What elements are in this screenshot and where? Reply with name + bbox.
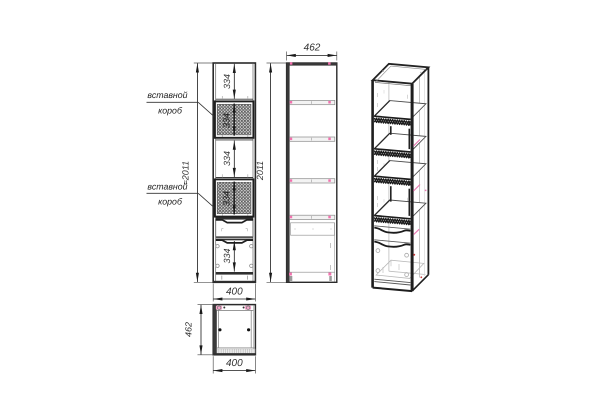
svg-text:400: 400 (226, 358, 243, 369)
svg-text:334: 334 (222, 151, 232, 166)
svg-text:462: 462 (304, 43, 321, 54)
svg-text:2011: 2011 (255, 161, 265, 181)
svg-text:400: 400 (226, 287, 243, 298)
svg-text:короб: короб (158, 106, 183, 116)
svg-text:462: 462 (184, 322, 194, 337)
svg-text:короб: короб (158, 197, 183, 207)
svg-text:334: 334 (221, 191, 231, 206)
svg-text:334: 334 (221, 113, 231, 128)
svg-text:вставной: вставной (147, 90, 187, 100)
svg-text:334: 334 (222, 248, 232, 263)
svg-text:334: 334 (222, 74, 232, 89)
svg-text:вставной: вставной (147, 181, 187, 191)
